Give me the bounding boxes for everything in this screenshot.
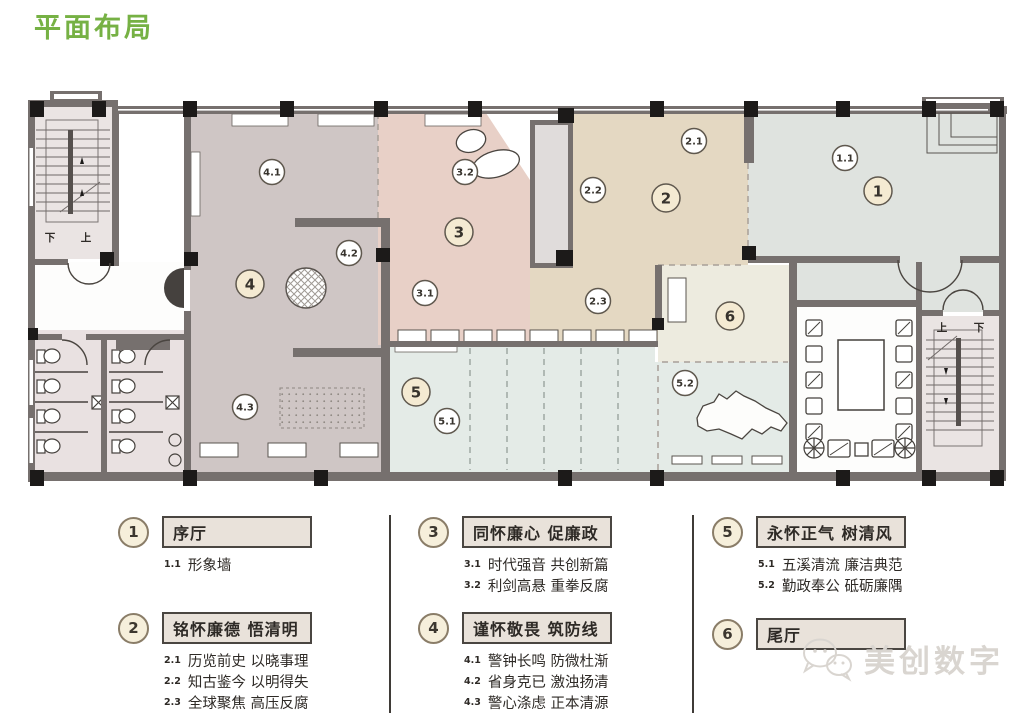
plan-marker-3: 3	[445, 218, 473, 246]
svg-text:2.2: 2.2	[584, 186, 602, 197]
legend-divider-1	[389, 515, 391, 713]
plan-marker-4.1: 4.1	[260, 160, 285, 185]
svg-text:5: 5	[411, 383, 421, 401]
plan-marker-5: 5	[402, 378, 430, 406]
legend-item-4: 4 谨怀敬畏 筑防线 4.1警钟长鸣 防微杜渐 4.2省身克已 激浊扬清 4.3…	[418, 612, 612, 714]
legend-divider-2	[692, 515, 694, 713]
plan-marker-2.1: 2.1	[682, 129, 707, 154]
legend-title-2: 铭怀廉德 悟清明	[162, 612, 312, 644]
svg-text:2.1: 2.1	[685, 137, 703, 148]
legend-title-3: 同怀廉心 促廉政	[462, 516, 612, 548]
svg-text:6: 6	[725, 307, 735, 325]
svg-text:4: 4	[245, 275, 255, 293]
stair-direction-label: 上	[81, 231, 92, 244]
plan-marker-2: 2	[652, 184, 680, 212]
legend-num-3: 3	[418, 517, 449, 548]
legend-item-3: 3 同怀廉心 促廉政 3.1时代强音 共创新篇 3.2利剑高悬 重拳反腐	[418, 516, 612, 597]
svg-text:3.1: 3.1	[416, 289, 434, 300]
legend-title-1: 序厅	[162, 516, 312, 548]
watermark: 美创数字	[798, 634, 1004, 682]
floor-plan: 11.122.12.22.333.13.244.14.24.355.15.26下…	[0, 0, 1034, 505]
display-wall	[535, 125, 568, 263]
legend-sub: 5.1五溪清流 廉洁典范	[758, 555, 906, 576]
svg-text:2.3: 2.3	[589, 297, 607, 308]
legend-num-5: 5	[712, 517, 743, 548]
stair-direction-label: 下	[45, 232, 56, 244]
legend-item-2: 2 铭怀廉德 悟清明 2.1历览前史 以晓事理 2.2知古鉴今 以明得失 2.3…	[118, 612, 312, 714]
round-column	[286, 268, 326, 308]
legend-sub: 4.2省身克已 激浊扬清	[464, 672, 612, 693]
legend-sub: 2.1历览前史 以晓事理	[164, 651, 312, 672]
plan-marker-1: 1	[864, 177, 892, 205]
plan-marker-6: 6	[716, 302, 744, 330]
legend-item-5: 5 永怀正气 树清风 5.1五溪清流 廉洁典范 5.2勤政奉公 砥砺廉隅	[712, 516, 906, 597]
plan-marker-1.1: 1.1	[833, 146, 858, 171]
plan-marker-3.1: 3.1	[413, 281, 438, 306]
vestibule	[34, 262, 184, 332]
plan-marker-5.1: 5.1	[435, 409, 460, 434]
plan-marker-4.3: 4.3	[233, 395, 258, 420]
svg-text:4.1: 4.1	[263, 168, 281, 179]
plan-marker-3.2: 3.2	[453, 160, 478, 185]
legend-sub: 3.1时代强音 共创新篇	[464, 555, 612, 576]
legend-sub: 4.1警钟长鸣 防微杜渐	[464, 651, 612, 672]
svg-text:4.2: 4.2	[340, 249, 358, 260]
wechat-bubbles-icon	[798, 634, 856, 682]
legend-title-5: 永怀正气 树清风	[756, 516, 906, 548]
plan-marker-4.2: 4.2	[337, 241, 362, 266]
svg-text:2: 2	[661, 189, 671, 207]
exhibit-zone	[280, 388, 364, 428]
watermark-text: 美创数字	[864, 636, 1004, 681]
plan-marker-4: 4	[236, 270, 264, 298]
legend-title-4: 谨怀敬畏 筑防线	[462, 612, 612, 644]
legend-sub: 1.1形象墙	[164, 555, 312, 576]
plan-marker-2.3: 2.3	[586, 289, 611, 314]
legend-sub: 4.3警心涤虑 正本清源	[464, 693, 612, 714]
legend-sub: 5.2勤政奉公 砥砺廉隅	[758, 576, 906, 597]
svg-text:5.2: 5.2	[676, 379, 694, 390]
legend-num-1: 1	[118, 517, 149, 548]
corridor-5	[390, 345, 655, 474]
svg-text:5.1: 5.1	[438, 417, 456, 428]
stair-direction-label: 上	[937, 321, 948, 334]
legend-num-4: 4	[418, 613, 449, 644]
legend-sub: 2.3全球聚焦 高压反腐	[164, 693, 312, 714]
legend-num-6: 6	[712, 619, 743, 650]
svg-text:3.2: 3.2	[456, 168, 474, 179]
svg-text:4.3: 4.3	[236, 403, 254, 414]
legend-sub: 2.2知古鉴今 以明得失	[164, 672, 312, 693]
plan-marker-5.2: 5.2	[673, 371, 698, 396]
svg-text:3: 3	[454, 223, 464, 241]
legend-item-1: 1 序厅 1.1形象墙	[118, 516, 312, 576]
svg-text:1.1: 1.1	[836, 154, 854, 165]
stair-direction-label: 下	[974, 322, 985, 334]
svg-text:1: 1	[873, 182, 883, 200]
legend-num-2: 2	[118, 613, 149, 644]
legend-sub: 3.2利剑高悬 重拳反腐	[464, 576, 612, 597]
plan-marker-2.2: 2.2	[581, 178, 606, 203]
meeting-table	[838, 340, 884, 410]
